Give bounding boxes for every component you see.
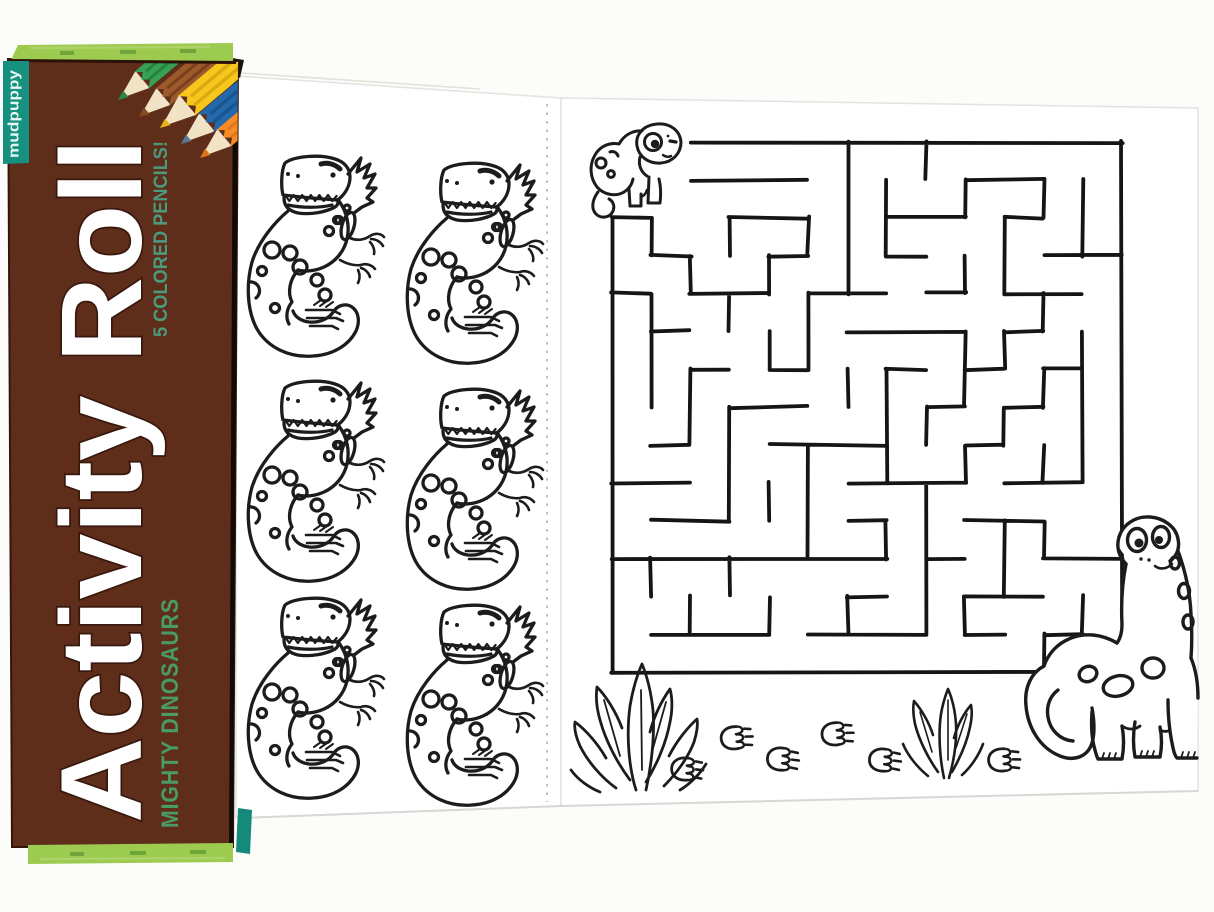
svg-text:mudpuppy: mudpuppy <box>6 69 23 158</box>
svg-text:MIGHTY DINOSAURS: MIGHTY DINOSAURS <box>157 598 184 828</box>
svg-text:5 COLORED PENCILS!: 5 COLORED PENCILS! <box>151 141 172 337</box>
svg-text:Activity Roll: Activity Roll <box>38 139 166 823</box>
